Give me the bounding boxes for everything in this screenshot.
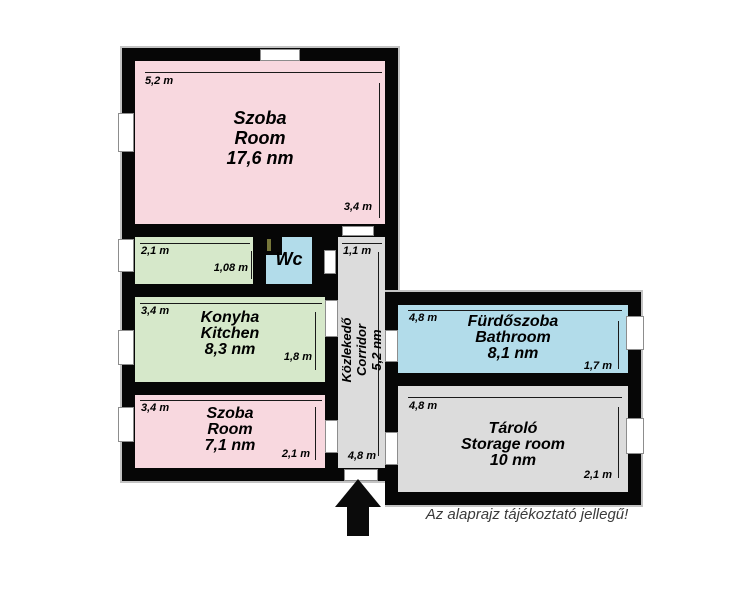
dim-line [342,243,382,244]
dim-label-top: 5,2 m [145,76,173,87]
right-block-edge-top [385,290,643,292]
door-room-small [325,420,338,453]
room-kitchen: 3,4 m 1,8 m Konyha Kitchen 8,3 nm [135,297,325,382]
door-kitchen [325,300,338,337]
room-label: Fürdőszoba Bathroom 8,1 nm [398,314,628,362]
room-name-en: Storage room [398,437,628,453]
entrance-arrow-icon [335,479,381,507]
room-name-hu: Közlekedő [339,270,354,430]
room-name-hu: Fürdőszoba [398,314,628,330]
dim-line [140,400,322,401]
room-wc: Wc [266,237,312,284]
room-pantry: 2,1 m 1,08 m [135,237,253,284]
dim-label-top: 2,1 m [141,246,169,257]
window-left-3 [118,330,134,365]
window-left-4 [118,407,134,442]
dim-label-top: 4,8 m [409,401,437,412]
room-area: 8,1 nm [398,346,628,362]
room-name-hu: Szoba [135,108,385,128]
dim-line [408,310,622,311]
room-label: Konyha Kitchen 8,3 nm [135,310,325,358]
window-corridor-top [342,226,374,236]
corridor-label: Közlekedő Corridor 5,2 nm [339,270,385,430]
room-label: Szoba Room 17,6 nm [135,108,385,168]
disclaimer-text: Az alaprajz tájékoztató jellegű! [398,506,656,524]
room-area: 17,6 nm [135,148,385,168]
entrance-arrow-stem [347,505,369,536]
room-name-hu: Szoba [135,406,325,422]
room-label: Szoba Room 7,1 nm [135,406,325,454]
dim-label-side: 3,4 m [310,202,372,213]
room-label: Wc [266,249,312,269]
room-name-en: Kitchen [135,326,325,342]
dim-label-top: 1,1 m [343,246,371,257]
dim-line [408,397,622,398]
dim-line [145,72,382,73]
room-name-en: Corridor [354,270,369,430]
room-bathroom: 4,8 m 1,7 m Fürdőszoba Bathroom 8,1 nm [398,305,628,373]
room-name-en: Room [135,422,325,438]
door-wc [324,250,336,274]
room-area: 8,3 nm [135,342,325,358]
room-name-hu: Tároló [398,421,628,437]
dim-line [140,303,322,304]
room-name-en: Bathroom [398,330,628,346]
room-storage: 4,8 m 2,1 m Tároló Storage room 10 nm [398,386,628,492]
door-bathroom [385,330,398,362]
dim-label-side: 2,1 m [550,470,612,481]
room-name-en: Room [135,128,385,148]
room-small: 3,4 m 2,1 m Szoba Room 7,1 nm [135,395,325,468]
dim-line [251,251,252,279]
dim-label-side: 1,7 m [550,361,612,372]
dim-label-side: 4,8 m [338,451,376,462]
window-top [260,49,300,61]
window-left-1 [118,113,134,152]
door-storage [385,432,398,465]
window-left-2 [118,239,134,272]
room-label: Tároló Storage room 10 nm [398,421,628,469]
room-area: 10 nm [398,453,628,469]
floor-plan: 5,2 m 3,4 m Szoba Room 17,6 nm 2,1 m 1,0… [0,0,730,609]
dim-label-side: 1,08 m [190,263,248,274]
window-storage-right [626,418,644,454]
window-bathroom-right [626,316,644,350]
room-name-hu: Wc [266,249,312,269]
dim-line [140,243,250,244]
room-area: 7,1 nm [135,438,325,454]
room-name-hu: Konyha [135,310,325,326]
room-area: 5,2 nm [369,270,384,430]
room-large: 5,2 m 3,4 m Szoba Room 17,6 nm [135,61,385,224]
